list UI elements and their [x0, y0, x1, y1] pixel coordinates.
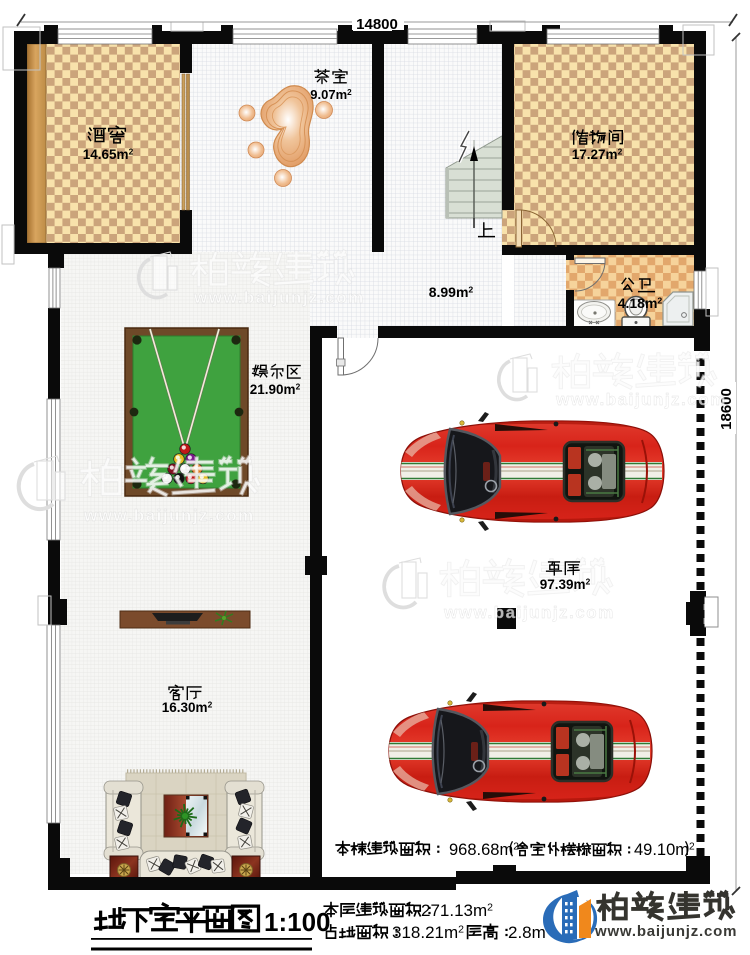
svg-text:www.baijunjz.com: www.baijunjz.com: [83, 506, 255, 525]
svg-text:9.07m2: 9.07m2: [310, 87, 352, 102]
svg-text:4.18m2: 4.18m2: [618, 295, 663, 311]
svg-text:14800: 14800: [356, 16, 398, 33]
svg-text:17.27m2: 17.27m2: [572, 147, 623, 162]
svg-text:www.baijunjz.com: www.baijunjz.com: [193, 288, 365, 307]
svg-text:2.8m: 2.8m: [508, 923, 546, 942]
svg-text:www.baijunjz.com: www.baijunjz.com: [443, 603, 615, 622]
svg-text:www.baijunjz.com: www.baijunjz.com: [555, 390, 727, 409]
svg-text:16.30m2: 16.30m2: [162, 700, 213, 715]
svg-text:21.90m2: 21.90m2: [250, 382, 301, 397]
svg-text:1:100: 1:100: [264, 907, 331, 937]
svg-text:www.baijunjz.com: www.baijunjz.com: [594, 923, 737, 940]
svg-text:271.13m2: 271.13m2: [421, 901, 493, 920]
svg-text:14.65m2: 14.65m2: [83, 147, 134, 162]
svg-text:8.99m2: 8.99m2: [429, 284, 474, 300]
svg-text:968.68m2: 968.68m2: [449, 841, 519, 859]
svg-text:318.21m2: 318.21m2: [392, 923, 464, 942]
svg-text:97.39m2: 97.39m2: [540, 577, 591, 592]
